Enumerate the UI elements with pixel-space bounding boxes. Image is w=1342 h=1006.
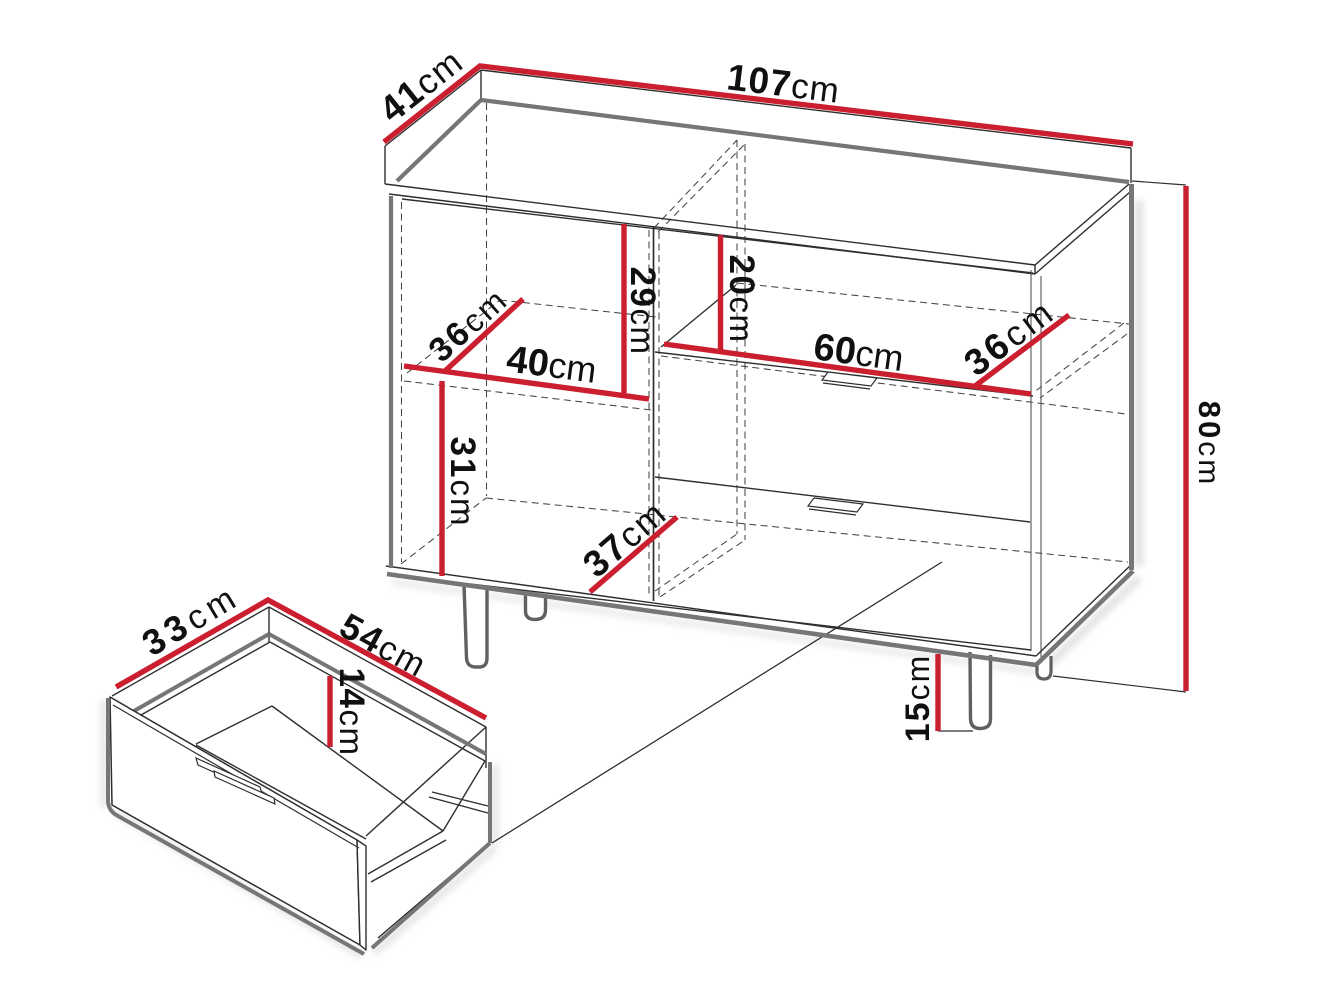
svg-text:33cm: 33cm: [135, 575, 246, 664]
svg-text:29cm: 29cm: [623, 267, 662, 356]
svg-text:20cm: 20cm: [722, 255, 761, 344]
svg-text:80cm: 80cm: [1192, 401, 1227, 487]
svg-text:37cm: 37cm: [575, 492, 674, 586]
svg-text:36cm: 36cm: [956, 290, 1062, 384]
svg-text:107cm: 107cm: [725, 56, 843, 111]
svg-text:15cm: 15cm: [899, 654, 937, 742]
svg-text:14cm: 14cm: [332, 668, 371, 757]
svg-text:36cm: 36cm: [422, 280, 516, 370]
svg-text:31cm: 31cm: [443, 437, 482, 528]
